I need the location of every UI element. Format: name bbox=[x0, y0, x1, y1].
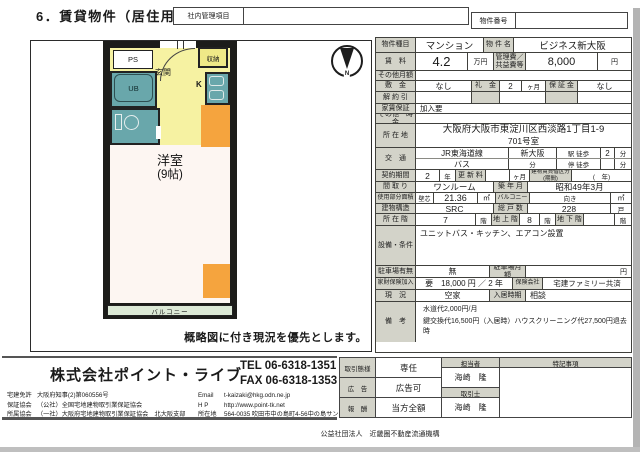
layout-label: 間 取 り bbox=[376, 182, 416, 192]
name-value: ビジネス新大阪 bbox=[514, 38, 631, 52]
access-rail-row: JR東海道線 新大阪 駅 徒歩 2 分 bbox=[416, 148, 631, 159]
agency-contact: TEL 06-6318-1351 FAX 06-6318-1353 bbox=[240, 359, 337, 389]
address-label: 所 在 地 bbox=[376, 124, 416, 147]
building-lease-label: 建物賃貸借区分(期間) bbox=[530, 170, 572, 181]
other-monthly-value-empty bbox=[416, 71, 631, 80]
transaction-table: 取引態様 広 告 報 酬 専任 広告可 当方全額 担当者 海崎 隆 取引士 海崎… bbox=[339, 357, 632, 418]
floors-above-label: 地 上 階 bbox=[492, 214, 520, 225]
internal-management-box: 社内管理項目 bbox=[173, 7, 469, 25]
row-insurance: 家財保険加入 要 18,000 円 ／ 2 年 保険会社 宅建ファミリー共済 bbox=[376, 278, 631, 290]
access-label: 交 通 bbox=[376, 148, 416, 169]
row-facilities: 設備・条件 ユニットバス・キッチン、エアコン設置 bbox=[376, 226, 631, 266]
stop-minutes-empty bbox=[601, 159, 615, 169]
staff-name: 海崎 隆 bbox=[442, 368, 499, 388]
floors-below-unit: 階 bbox=[615, 214, 631, 225]
deal-type-value: 専任 bbox=[376, 358, 441, 378]
renewal-fee-value-empty bbox=[486, 170, 510, 181]
floors-above-value: 8 bbox=[520, 214, 540, 225]
room-name: 洋室 bbox=[110, 153, 230, 169]
staff-col: 担当者 海崎 隆 取引士 海崎 隆 bbox=[442, 358, 500, 417]
other-onetime-label: その他一時金 bbox=[376, 114, 416, 123]
floor-unit: 階 bbox=[476, 214, 492, 225]
status-label: 現 況 bbox=[376, 290, 416, 301]
row-access: 交 通 JR東海道線 新大阪 駅 徒歩 2 分 バス 分 停 徒歩 分 bbox=[376, 148, 631, 170]
remarks-value: 水道代2,000円/月 鍵交換代16,500円（入居時）ハウスクリーニング代27… bbox=[420, 304, 631, 338]
rail-line: JR東海道線 bbox=[416, 148, 509, 158]
area-unit: ㎡ bbox=[478, 193, 496, 203]
row-floor: 所 在 階 7 階 地 上 階 8 階 地 下 階 階 bbox=[376, 214, 631, 226]
type-label: 物件種目 bbox=[376, 38, 416, 52]
mgmt-fee-unit: 円 bbox=[598, 53, 631, 70]
insurance-value: 要 18,000 円 ／ 2 年 bbox=[416, 278, 513, 289]
room-label: 洋室 (9帖) bbox=[110, 153, 230, 182]
type-value: マンション bbox=[416, 38, 484, 52]
contract-unit: 年 bbox=[440, 170, 456, 181]
scan-edge-bottom bbox=[0, 447, 640, 452]
reins-org-note: 公益社団法人 近畿圏不動産流通機構 bbox=[220, 429, 540, 439]
other-onetime-value-empty bbox=[416, 114, 631, 123]
hp-value: http://www.point-tk.net bbox=[224, 402, 285, 409]
row-other-monthly: その他月額 bbox=[376, 71, 631, 81]
remarks-line1: 水道代2,000円/月 bbox=[420, 304, 631, 316]
bus-label: バス bbox=[416, 159, 509, 169]
row-deposit: 敷 金 なし 礼 金 2 ヶ月 保 証 金 なし bbox=[376, 81, 631, 92]
renewal-fee-label: 更 新 料 bbox=[456, 170, 486, 181]
key-money-unit: ヶ月 bbox=[522, 81, 546, 91]
property-number-label: 物件番号 bbox=[472, 13, 516, 28]
mgmt-fee-label: 管理費／共益費等 bbox=[494, 53, 526, 70]
row-structure: 建物構造 SRC 総 戸 数 228 戸 bbox=[376, 204, 631, 214]
bathtub-label: UB bbox=[114, 74, 153, 102]
walk-minutes-unit: 分 bbox=[615, 148, 631, 158]
balcony-label: バルコニー bbox=[107, 305, 233, 316]
address-line2: 701号室 bbox=[508, 136, 539, 147]
rent-label: 賃 料 bbox=[376, 53, 416, 70]
agency-panel: 株式会社ポイント・ライブ TEL 06-6318-1351 FAX 06-631… bbox=[2, 356, 337, 420]
row-cancellation: 解 約 引 bbox=[376, 92, 631, 104]
facilities-value: ユニットバス・キッチン、エアコン設置 bbox=[416, 226, 631, 265]
row-layout: 間 取 り ワンルーム 築 年 月 昭和49年3月 bbox=[376, 182, 631, 193]
hp-label: H P bbox=[198, 401, 224, 411]
address-value: 大阪府大阪市東淀川区西淡路1丁目1-9 701号室 bbox=[443, 124, 605, 147]
built-value: 昭和49年3月 bbox=[528, 182, 631, 192]
layout-value: ワンルーム bbox=[416, 182, 494, 192]
guarantee-label: 保証協会 bbox=[7, 401, 37, 411]
shaded-cell bbox=[472, 92, 500, 103]
guarantee-value: （公社）全国宅地建物取引業保証協会 bbox=[37, 402, 142, 409]
mgmt-fee-value: 8,000 bbox=[526, 53, 598, 70]
row-area: 使用部分面積 壁芯 21.36 ㎡ バルコニー 向き ㎡ bbox=[376, 193, 631, 204]
assoc-label: 所属協会 bbox=[7, 410, 37, 420]
entrance-label: 玄関 bbox=[155, 67, 171, 78]
appliance-space-upper bbox=[201, 105, 230, 147]
insurance-company-value: 宅建ファミリー共済 bbox=[543, 278, 631, 289]
total-units-unit: 戸 bbox=[611, 204, 631, 213]
balcony-col-label: バルコニー bbox=[496, 193, 530, 203]
internal-management-value-empty bbox=[244, 8, 468, 24]
guarantee-money-value: なし bbox=[578, 81, 631, 91]
facilities-label: 設備・条件 bbox=[376, 226, 416, 265]
walk-label: 駅 徒歩 bbox=[557, 148, 601, 158]
floorplan-drawing: PS UB 収納 K 玄関 洋室 (9帖) バルコニー bbox=[103, 41, 237, 319]
license-value: 大阪府知事(2)第060556号 bbox=[37, 392, 109, 399]
remarks-label: 備 考 bbox=[376, 302, 416, 342]
special-notes-header: 特記事項 bbox=[500, 358, 631, 368]
key-money-label: 礼 金 bbox=[472, 81, 500, 91]
row-parking: 駐車場有無 無 駐車場月額 円 bbox=[376, 266, 631, 278]
deposit-value: なし bbox=[416, 81, 472, 91]
property-number-value-empty bbox=[516, 13, 627, 28]
assoc-value: （一社）大阪府宅地建物取引業保証協会 北大阪支部 bbox=[37, 411, 186, 418]
contract-value: 2 bbox=[416, 170, 440, 181]
address-line1: 大阪府大阪市東淀川区西淡路1丁目1-9 bbox=[443, 124, 605, 136]
pipe-shaft-label: PS bbox=[113, 50, 153, 69]
fee-label: 報 酬 bbox=[340, 398, 375, 417]
remarks-line2: 鍵交換代16,500円（入居時）ハウスクリーニング代27,500円退去時 bbox=[420, 316, 631, 338]
room-size: (9帖) bbox=[110, 169, 230, 183]
bus-minutes-unit: 分 bbox=[509, 159, 557, 169]
deposit-label: 敷 金 bbox=[376, 81, 416, 91]
internal-management-label: 社内管理項目 bbox=[174, 8, 244, 24]
stop-minutes-unit: 分 bbox=[615, 159, 631, 169]
insurance-company-label: 保険会社 bbox=[513, 278, 543, 289]
license-label: 宅建免許 bbox=[7, 391, 37, 401]
row-address: 所 在 地 大阪府大阪市東淀川区西淡路1丁目1-9 701号室 bbox=[376, 124, 631, 148]
station-name: 新大阪 bbox=[509, 148, 557, 158]
contract-label: 契約期間 bbox=[376, 170, 416, 181]
floor-label: 所 在 階 bbox=[376, 214, 416, 225]
row-status: 現 況 空家 入居時期 相談 bbox=[376, 290, 631, 302]
shaded-cell bbox=[546, 92, 578, 103]
license-info: 宅建免許大阪府知事(2)第060556号 保証協会（公社）全国宅地建物取引業保証… bbox=[7, 391, 186, 420]
renewal-fee-unit: ヶ月 bbox=[510, 170, 530, 181]
appliance-space-lower bbox=[203, 264, 230, 298]
floor-value: 7 bbox=[416, 214, 476, 225]
building-lease-value: ( 年) bbox=[572, 170, 631, 181]
movein-value: 相談 bbox=[526, 290, 631, 301]
license-line: 宅建免許大阪府知事(2)第060556号 bbox=[7, 391, 186, 401]
area-value: 21.36 bbox=[434, 193, 478, 203]
compass-north-label: N bbox=[344, 71, 350, 77]
floors-below-label: 地 下 階 bbox=[556, 214, 584, 225]
property-spec-table: 物件種目 マンション 物 件 名 ビジネス新大阪 賃 料 4.2 万円 管理費／… bbox=[375, 37, 632, 353]
row-rent-guarantee: 家賃保証 加入要 bbox=[376, 104, 631, 114]
access-bus-row: バス 分 停 徒歩 分 bbox=[416, 159, 631, 169]
storage-label: 収納 bbox=[198, 47, 228, 68]
office-addr-label: 所在地 bbox=[198, 410, 224, 420]
agency-name: 株式会社ポイント・ライブ bbox=[50, 364, 242, 385]
cancellation-label: 解 約 引 bbox=[376, 92, 416, 103]
empty-cell bbox=[500, 92, 546, 103]
floors-above-unit: 階 bbox=[540, 214, 556, 225]
property-number-box: 物件番号 bbox=[471, 12, 628, 29]
toilet-tank-icon bbox=[115, 114, 122, 130]
other-monthly-label: その他月額 bbox=[376, 71, 416, 80]
rent-unit: 万円 bbox=[468, 53, 494, 70]
email-label: Email bbox=[198, 391, 224, 401]
row-rent: 賃 料 4.2 万円 管理費／共益費等 8,000 円 bbox=[376, 53, 631, 71]
row-type-name: 物件種目 マンション 物 件 名 ビジネス新大阪 bbox=[376, 38, 631, 53]
row-other-onetime: その他一時金 bbox=[376, 114, 631, 124]
agency-tel: TEL 06-6318-1351 bbox=[240, 359, 337, 374]
parking-value: 無 bbox=[416, 266, 490, 277]
transaction-values-col: 専任 広告可 当方全額 bbox=[376, 358, 442, 417]
staff-header: 担当者 bbox=[442, 358, 499, 368]
agency-fax: FAX 06-6318-1353 bbox=[240, 374, 337, 389]
fee-value: 当方全額 bbox=[376, 398, 441, 417]
balcony-facing-label: 向き bbox=[530, 193, 611, 203]
kitchen-stove-icon bbox=[209, 90, 224, 100]
property-sheet: 6．賃貸物件（居住用） 社内管理項目 物件番号 N PS UB 収納 bbox=[0, 0, 640, 452]
area-sub-label: 壁芯 bbox=[416, 193, 434, 203]
name-label: 物 件 名 bbox=[484, 38, 514, 52]
parking-monthly-label: 駐車場月額 bbox=[490, 266, 526, 277]
balcony-area-unit: ㎡ bbox=[611, 193, 631, 203]
agent-name: 海崎 隆 bbox=[442, 398, 499, 417]
compass-needle-icon bbox=[340, 48, 354, 69]
kitchen-label: K bbox=[196, 80, 202, 89]
guarantee-line: 保証協会（公社）全国宅地建物取引業保証協会 bbox=[7, 401, 186, 411]
parking-monthly-unit: 円 bbox=[526, 266, 631, 277]
ad-value: 広告可 bbox=[376, 378, 441, 398]
email-value: t-kaizaki@hkg.odn.ne.jp bbox=[224, 392, 290, 399]
floors-below-value-empty bbox=[584, 214, 615, 225]
kitchen-sink-icon bbox=[209, 76, 224, 86]
toilet-bowl-icon bbox=[124, 115, 139, 130]
total-units-value: 228 bbox=[528, 204, 611, 213]
floorplan-panel: N PS UB 収納 K 玄関 洋室 (9帖) bbox=[30, 40, 372, 352]
insurance-label: 家財保険加入 bbox=[376, 278, 416, 289]
walk-minutes: 2 bbox=[601, 148, 615, 158]
structure-value: SRC bbox=[416, 204, 494, 213]
ad-label: 広 告 bbox=[340, 378, 375, 398]
special-notes-col: 特記事項 bbox=[500, 358, 631, 417]
status-value: 空家 bbox=[416, 290, 490, 301]
access-detail: JR東海道線 新大阪 駅 徒歩 2 分 バス 分 停 徒歩 分 bbox=[416, 148, 631, 169]
row-contract: 契約期間 2 年 更 新 料 ヶ月 建物賃貸借区分(期間) ( 年) bbox=[376, 170, 631, 182]
area-label: 使用部分面積 bbox=[376, 193, 416, 203]
door-mark bbox=[177, 41, 184, 49]
floorplan-caption: 概略図に付き現況を優先とします。 bbox=[184, 329, 367, 345]
scan-edge-right bbox=[633, 8, 640, 452]
rent-value: 4.2 bbox=[416, 53, 468, 70]
total-units-label: 総 戸 数 bbox=[494, 204, 528, 213]
compass-icon: N bbox=[331, 45, 363, 77]
stop-label: 停 徒歩 bbox=[557, 159, 601, 169]
deal-type-label: 取引態様 bbox=[340, 358, 375, 378]
empty-cell bbox=[578, 92, 631, 103]
rent-guarantee-label: 家賃保証 bbox=[376, 104, 416, 113]
bath-door-opening bbox=[156, 126, 161, 139]
agent-header: 取引士 bbox=[442, 388, 499, 398]
movein-label: 入居時期 bbox=[490, 290, 526, 301]
row-remarks: 備 考 水道代2,000円/月 鍵交換代16,500円（入居時）ハウスクリーニン… bbox=[376, 302, 631, 342]
special-notes-empty bbox=[500, 368, 631, 417]
transaction-labels-col: 取引態様 広 告 報 酬 bbox=[340, 358, 376, 417]
guarantee-money-label: 保 証 金 bbox=[546, 81, 578, 91]
key-money-value: 2 bbox=[500, 81, 522, 91]
empty-cell bbox=[416, 92, 472, 103]
page-title: 6．賃貸物件（居住用） bbox=[36, 6, 190, 25]
parking-label: 駐車場有無 bbox=[376, 266, 416, 277]
structure-label: 建物構造 bbox=[376, 204, 416, 213]
built-label: 築 年 月 bbox=[494, 182, 528, 192]
rent-guarantee-value: 加入要 bbox=[416, 104, 631, 113]
assoc-line: 所属協会（一社）大阪府宅地建物取引業保証協会 北大阪支部 bbox=[7, 410, 186, 420]
